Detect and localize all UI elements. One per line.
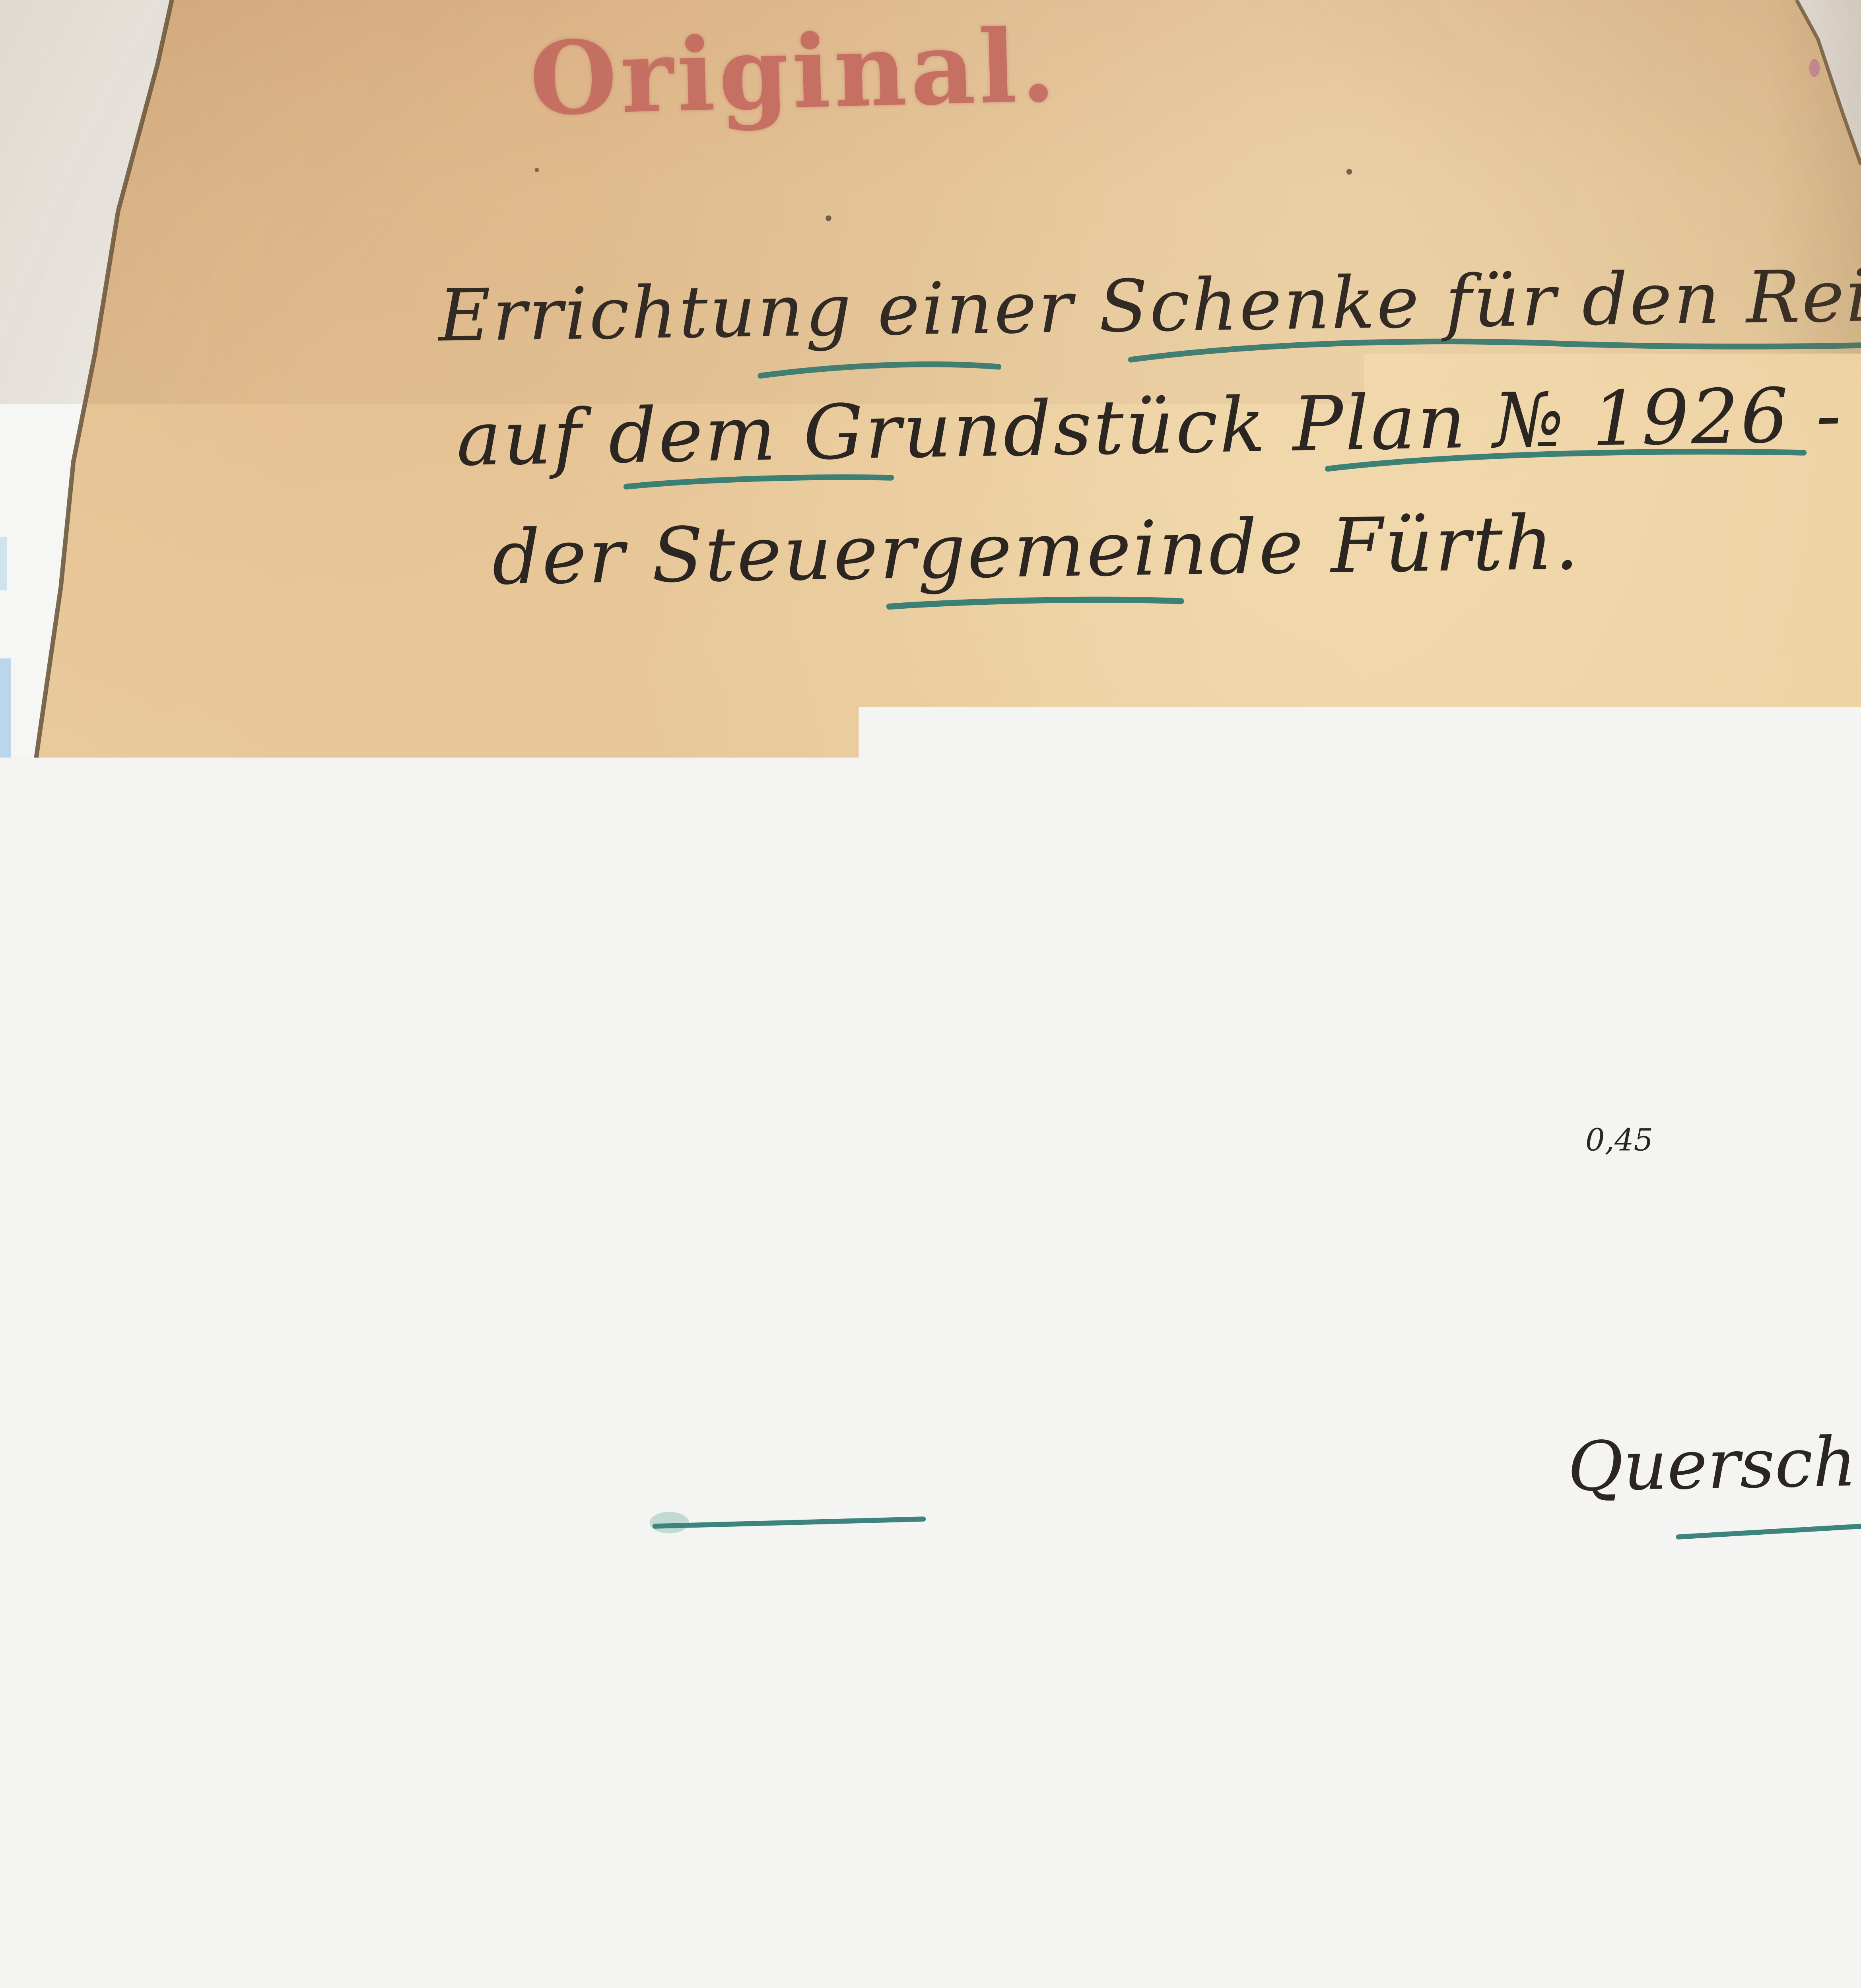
section-label: Querschnitt (1567, 1421, 1861, 1507)
elevation-drawing (260, 900, 1355, 1278)
section-wall-dim: 0,45 (1585, 1124, 1653, 1159)
page-canvas: Original. Errichtung einer Schenke für d… (0, 0, 1861, 1988)
original-stamp: Original. (528, 8, 1060, 140)
section-height-dim: 1,00 (1482, 1167, 1517, 1274)
elevation-label: Ansicht (657, 1431, 919, 1518)
scanned-blueprint-page: Original. Errichtung einer Schenke für d… (0, 0, 1861, 1988)
title-line-3: der Steuergemeinde Fürth. (491, 499, 1581, 602)
section-drawing (1459, 929, 1861, 1446)
